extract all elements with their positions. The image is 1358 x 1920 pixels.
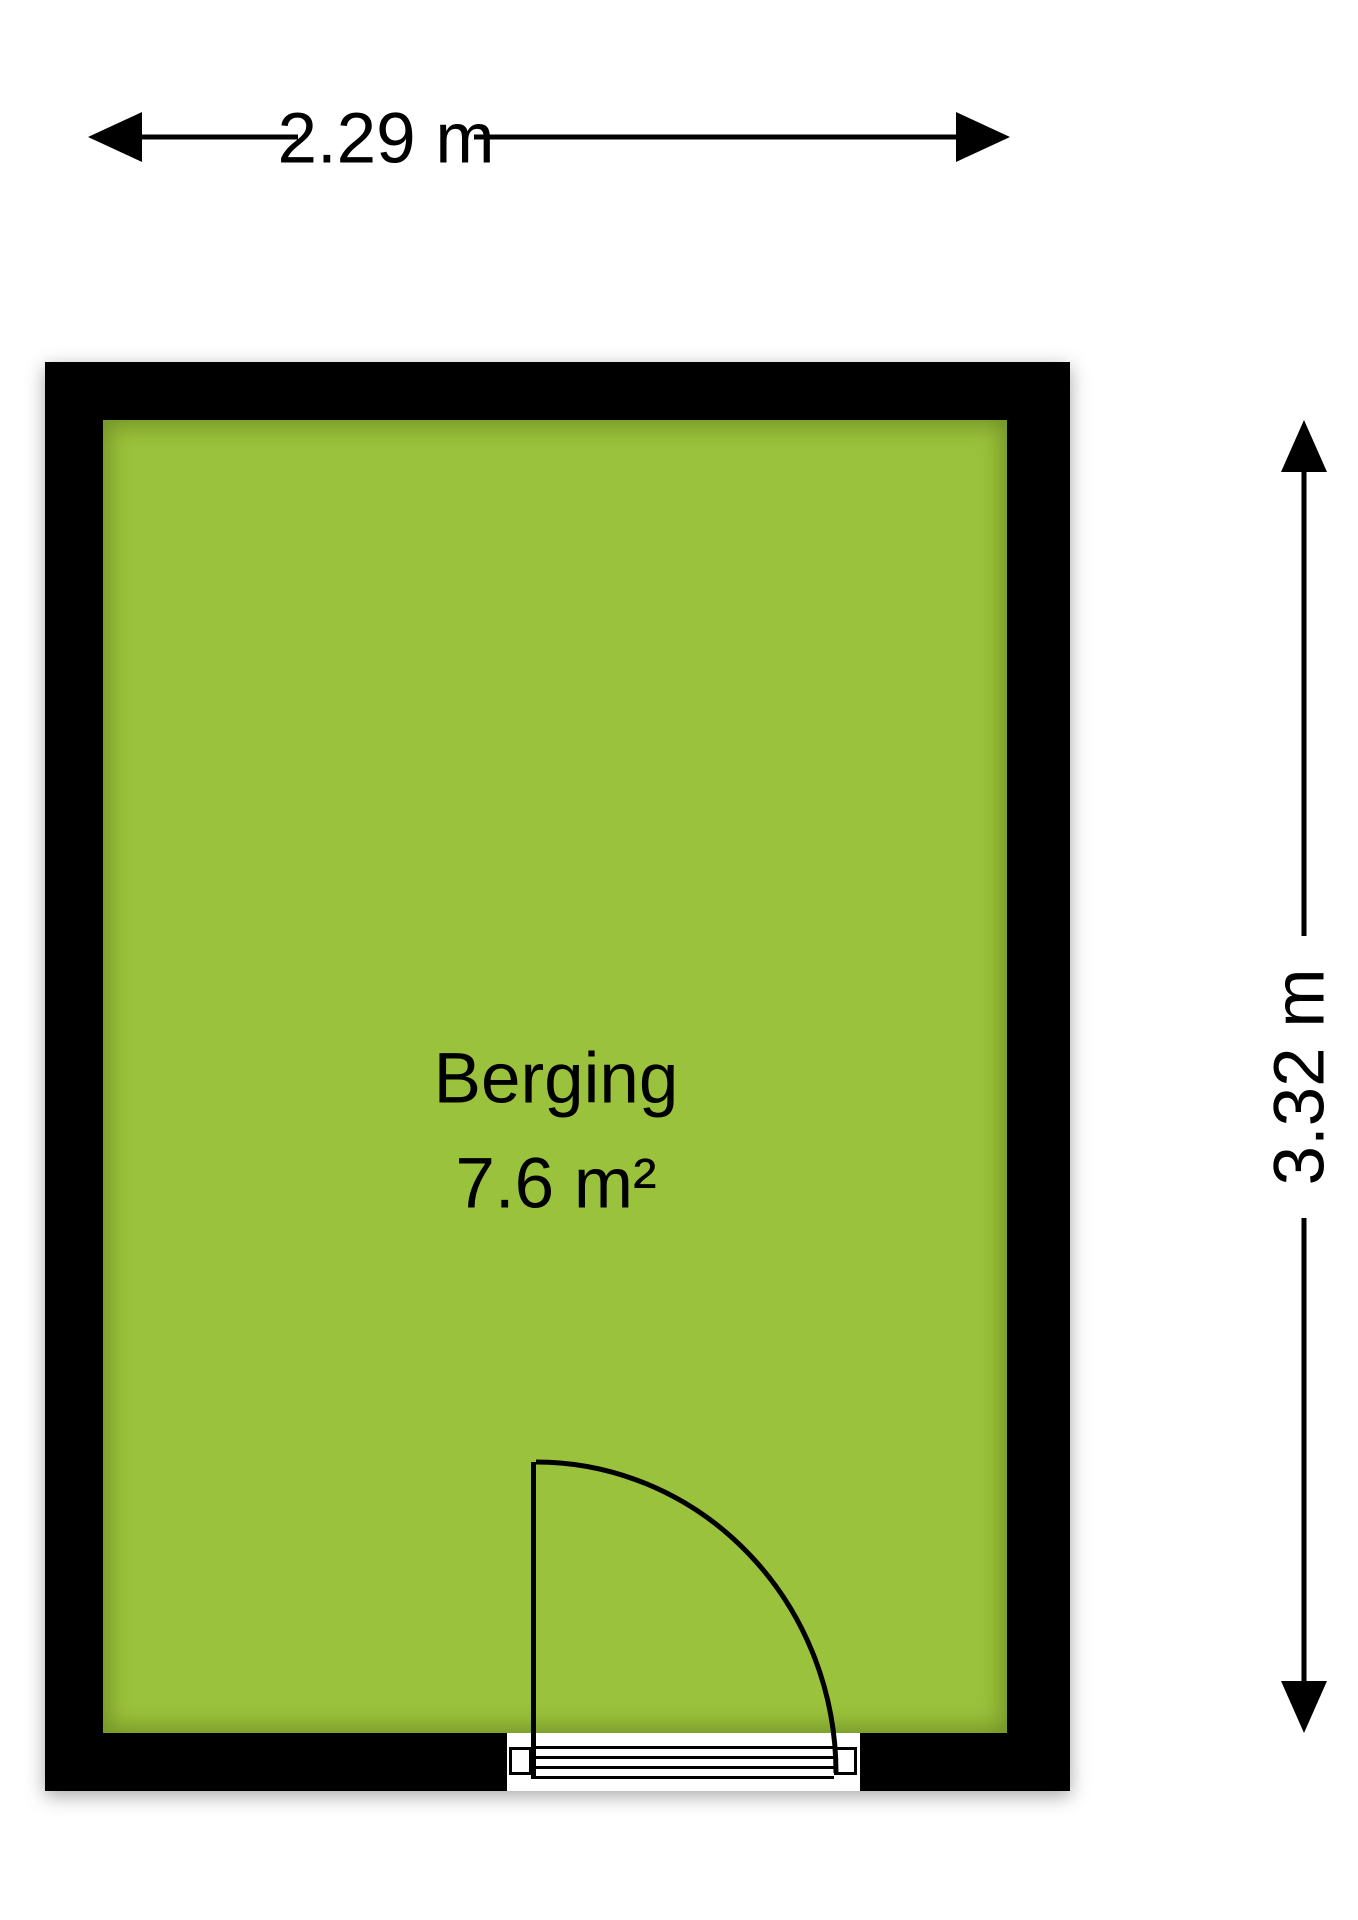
door-jamb-right — [834, 1747, 857, 1775]
door-jamb-left — [509, 1747, 532, 1775]
room-name-label: Berging — [434, 1044, 679, 1115]
width-dimension — [88, 112, 1010, 162]
height-dimension-label: 3.32 m — [1265, 968, 1336, 1185]
height-arrow-bottom-head-icon — [1281, 1681, 1327, 1733]
width-arrow-left-head-icon — [88, 112, 142, 162]
floorplan-canvas: 2.29 m 3.32 m Berging 7.6 m² — [0, 0, 1358, 1920]
width-arrow-right-head-icon — [956, 112, 1010, 162]
room-area-label: 7.6 m² — [455, 1149, 656, 1220]
door-leaf — [531, 1462, 536, 1777]
door-sill — [531, 1746, 834, 1779]
width-dimension-label: 2.29 m — [277, 104, 494, 175]
height-arrow-top-head-icon — [1281, 420, 1327, 472]
